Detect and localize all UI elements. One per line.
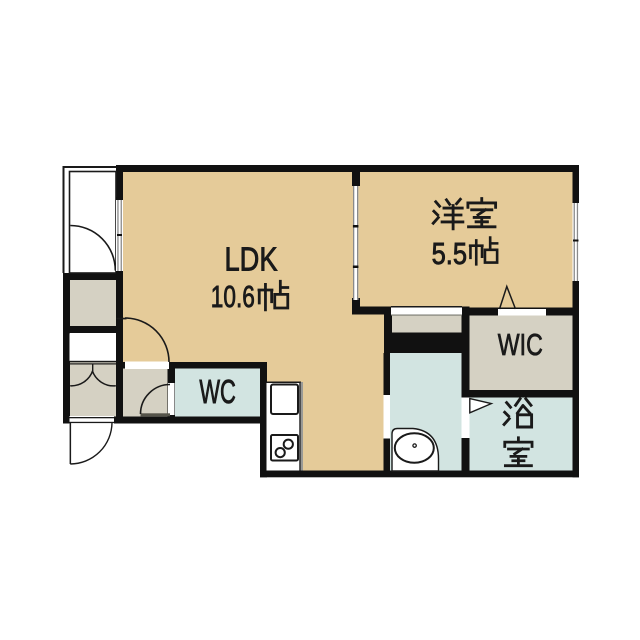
svg-text:WIC: WIC: [498, 327, 543, 362]
svg-text:LDK: LDK: [225, 242, 278, 279]
svg-text:10.6: 10.6: [211, 279, 255, 314]
svg-text:5.5: 5.5: [432, 236, 467, 271]
svg-text:WC: WC: [199, 373, 236, 410]
